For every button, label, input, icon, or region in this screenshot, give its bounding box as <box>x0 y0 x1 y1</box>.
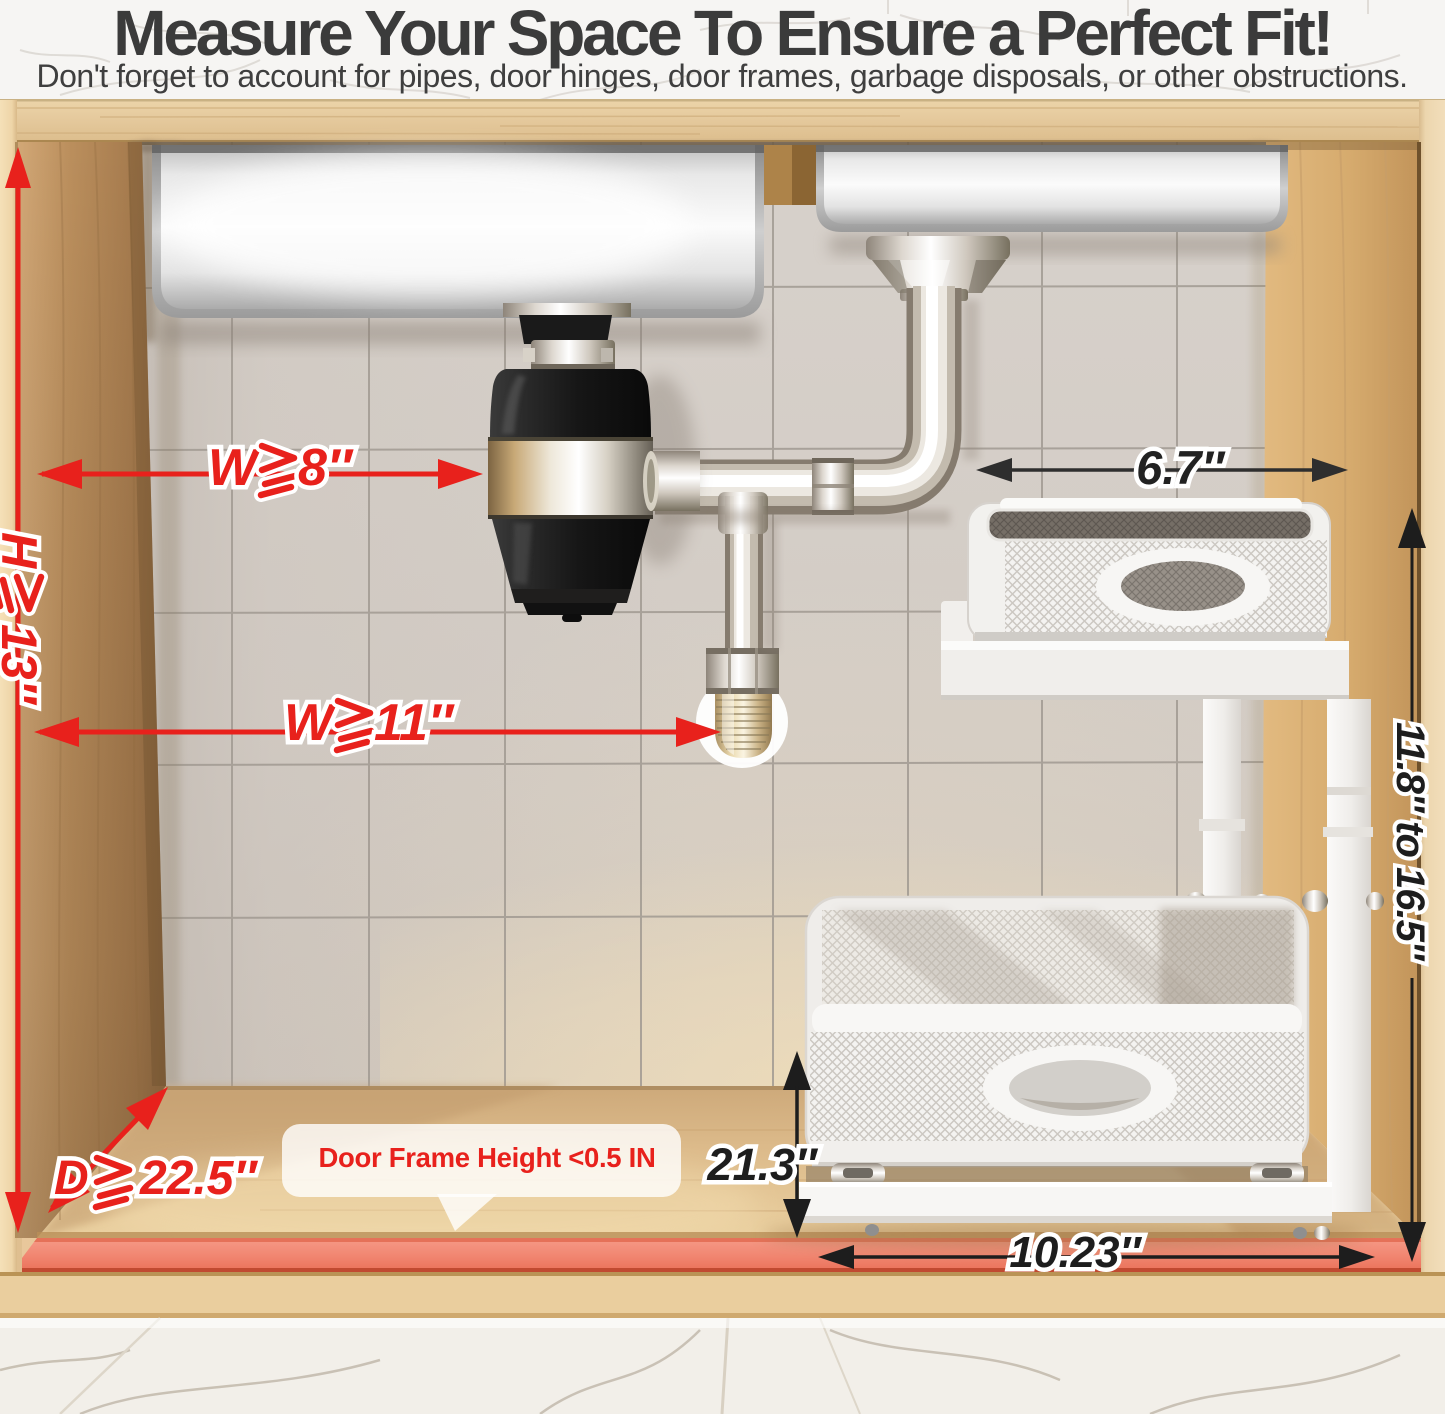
svg-text:6.7″: 6.7″ <box>1136 441 1226 494</box>
svg-text:13″: 13″ <box>0 624 47 706</box>
svg-text:W: W <box>284 694 337 752</box>
svg-text:Don't forget to account for pi: Don't forget to account for pipes, door … <box>36 58 1407 94</box>
svg-text:21.3″: 21.3″ <box>706 1139 819 1190</box>
svg-text:11″: 11″ <box>374 694 455 752</box>
svg-text:8″: 8″ <box>298 439 354 497</box>
svg-text:H: H <box>0 532 47 569</box>
svg-text:W: W <box>208 439 261 497</box>
svg-text:Door Frame Height <0.5 IN: Door Frame Height <0.5 IN <box>318 1142 655 1173</box>
svg-text:D: D <box>54 1152 89 1205</box>
svg-text:10.23″: 10.23″ <box>1009 1228 1142 1277</box>
svg-text:22.5″: 22.5″ <box>139 1152 258 1205</box>
svg-text:11.8″ to 16.5″: 11.8″ to 16.5″ <box>1388 722 1432 962</box>
